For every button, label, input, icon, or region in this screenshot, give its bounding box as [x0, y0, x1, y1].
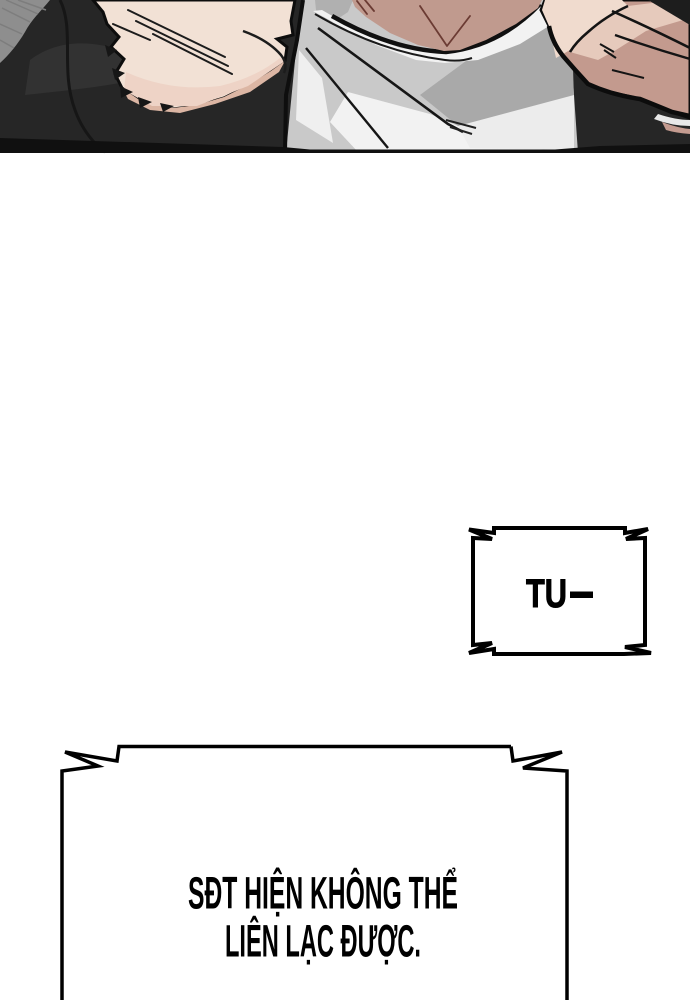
svg-text:TU: TU: [526, 572, 567, 616]
svg-text:LIÊN LẠC ĐƯỢC.: LIÊN LẠC ĐƯỢC.: [225, 916, 421, 967]
svg-text:SĐT HIỆN KHÔNG THỂ: SĐT HIỆN KHÔNG THỂ: [188, 868, 458, 919]
